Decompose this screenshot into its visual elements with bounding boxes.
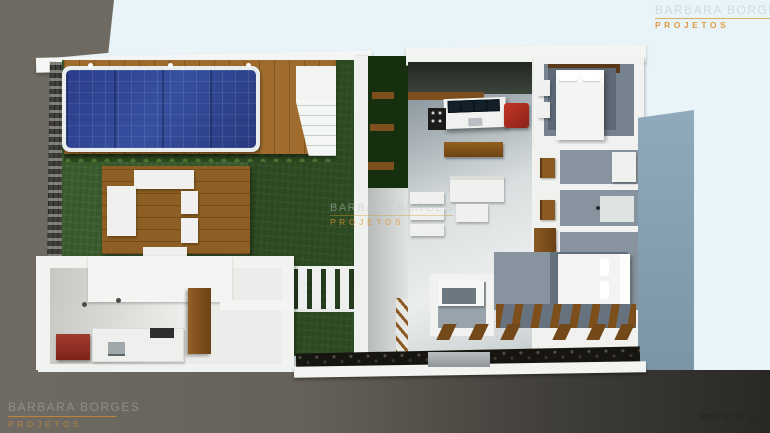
shower-fixture <box>596 206 600 210</box>
red-armchair <box>504 103 529 128</box>
pool-water <box>66 70 256 148</box>
kitchen-ceiling-shadow <box>408 62 534 94</box>
pool-light <box>168 63 173 68</box>
pool-light <box>88 63 93 68</box>
tall-wood-cabinet <box>188 288 211 354</box>
pillow <box>581 72 601 81</box>
pillow <box>600 281 609 299</box>
outdoor-sofa <box>134 170 194 189</box>
pillow <box>558 72 578 81</box>
counter-appliance <box>108 342 125 356</box>
watermark-top-right: BARBARA BORGES PROJETOS <box>655 3 770 30</box>
outdoor-ottoman <box>181 218 198 243</box>
black-stove <box>428 108 446 130</box>
watermark-name: BARBARA BORGES <box>330 202 453 216</box>
outdoor-lounger <box>107 186 136 236</box>
double-bed <box>556 70 604 140</box>
ceiling-lamp <box>82 302 87 307</box>
niche-opening <box>442 288 476 304</box>
watermark-name: BARBARA BORGES <box>8 400 116 417</box>
courtyard-step <box>370 124 394 131</box>
pool-light <box>246 63 251 68</box>
watermark-tagline: PROJETOS <box>8 419 116 429</box>
left-wing-wall <box>220 300 294 310</box>
wood-door <box>540 158 555 178</box>
wood-door <box>540 200 555 220</box>
watermark-center: BARBARA BORGES PROJETOS <box>330 202 453 227</box>
outdoor-ottoman <box>181 191 198 214</box>
cooktop <box>150 328 174 338</box>
living-sofa <box>450 176 504 202</box>
entry-step <box>428 352 490 367</box>
pillow <box>600 258 609 276</box>
courtyard-step <box>372 92 394 99</box>
island-cooktop-panel <box>448 100 461 112</box>
nightstand <box>538 102 550 118</box>
wardrobe <box>612 152 636 182</box>
watermark-bottom-left: BARBARA BORGES PROJETOS <box>8 400 116 429</box>
watermark-tagline: PROJETOS <box>655 20 770 30</box>
left-wing-bottom-edge <box>38 366 296 372</box>
shower-box <box>600 196 634 222</box>
guest-bed <box>558 254 630 304</box>
island-cooktop-panel <box>474 100 487 112</box>
island-cooktop-panel <box>487 99 500 111</box>
wood-sideboard <box>444 142 503 157</box>
ceiling-lamp <box>116 298 121 303</box>
watermark-project-number: PROJETO 21 <box>700 413 759 422</box>
island-cooktop-panel <box>461 100 474 112</box>
watermark-name: BARBARA BORGES <box>655 3 770 19</box>
floorplan-render: BARBARA BORGES PROJETOS BARBARA BORGES P… <box>0 0 770 433</box>
nightstand <box>538 80 550 96</box>
red-sideboard <box>56 334 90 360</box>
driveway-band <box>638 110 694 374</box>
kitchen-island <box>443 97 506 129</box>
courtyard-step <box>368 162 394 170</box>
island-sink <box>468 118 482 126</box>
coffee-table <box>456 204 488 222</box>
watermark-tagline: PROJETOS <box>330 217 453 227</box>
